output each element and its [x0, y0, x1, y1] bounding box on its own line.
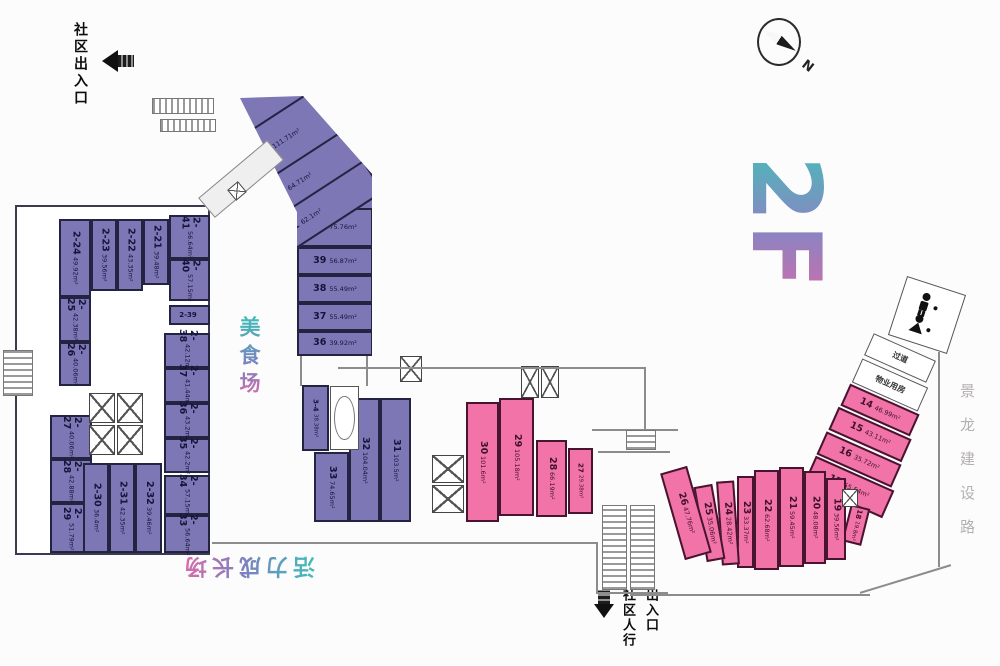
stairs [3, 350, 33, 396]
community-entrance-label: 社区出入口 [70, 22, 90, 107]
lift-lobby-room [330, 386, 359, 450]
elevator-box [432, 485, 464, 513]
unit-2-37: 2-3741.44m² [164, 368, 210, 403]
unit-23: 2333.37m² [737, 476, 754, 568]
restroom [888, 276, 966, 354]
corridor-line [596, 542, 598, 594]
unit-22: 2262.68m² [754, 470, 779, 570]
unit-2-40: 2-4057.15m² [169, 259, 210, 301]
unit-2-22: 2-2243.35m² [117, 219, 143, 291]
unit-21: 2159.45m² [779, 467, 804, 567]
unit-2-31: 2-3142.35m² [109, 463, 135, 553]
unit-37: 3755.49m² [297, 303, 373, 331]
unit-20: 2048.08m² [804, 471, 826, 564]
unit-2-38: 2-3842.12m² [164, 333, 210, 368]
walkway-bridge [198, 140, 284, 218]
elevator-box [432, 455, 464, 483]
unit-39: 3956.87m² [297, 247, 373, 275]
entrance-arrow-down-icon [594, 590, 614, 618]
unit-29: 29105.18m² [499, 398, 534, 516]
vitality-label: 活力成长场 [180, 552, 315, 584]
compass-icon: N [757, 18, 803, 68]
shaft-box [400, 356, 422, 382]
corridor-line [644, 367, 646, 431]
elevator-box [541, 366, 559, 398]
corridor-line [338, 367, 646, 369]
pedestrian-entrance-label: 社区人行 出入口 [594, 588, 660, 648]
unit-31: 31103.5m² [380, 398, 411, 522]
elevator-box [89, 393, 115, 423]
elevator-box [117, 425, 143, 455]
unit-30: 30101.6m² [466, 402, 499, 522]
unit-2-27: 2-2740.06m² [50, 415, 92, 459]
corridor-line [300, 356, 302, 386]
unit-2-30: 2-3036.4m² [83, 463, 109, 553]
escalator [152, 98, 214, 114]
unit-36: 3639.92m² [297, 331, 373, 356]
unit-2-36: 2-3643.2m² [164, 403, 210, 438]
entrance-arrow-left-icon [102, 50, 134, 72]
building-outline [860, 564, 951, 594]
unit-2-25: 2-2542.38m² [59, 297, 91, 342]
elevator-box [89, 425, 115, 455]
escalator [602, 505, 627, 590]
elevator-box [521, 366, 539, 398]
escalator [626, 430, 656, 450]
escalator [160, 119, 216, 132]
unit-33: 3374.65m² [314, 452, 349, 522]
unit-2-21: 2-2139.48m² [143, 219, 169, 285]
floor-label: 2F [710, 138, 860, 308]
unit-2-32: 2-3239.46m² [135, 463, 162, 553]
corridor-line [598, 451, 670, 453]
west-block: 2-2449.92m²2-2339.56m²2-2243.35m²2-2139.… [15, 205, 210, 555]
elevator-box [117, 393, 143, 423]
unit-38: 3855.49m² [297, 275, 373, 303]
restroom-icon [903, 289, 951, 342]
escalator [630, 505, 655, 590]
northeast-block: 4075.76m²3956.87m²3855.49m²3755.49m²3639… [200, 90, 385, 365]
unit-2-39: 2-39 [169, 305, 210, 325]
unit-2-35: 2-3542.2m² [164, 438, 210, 473]
corridor-line [366, 356, 368, 386]
building-outline [938, 352, 940, 567]
unit-3-4: 3-438.38m² [302, 385, 329, 451]
unit-27: 2729.38m² [568, 448, 593, 514]
unit-2-23: 2-2339.56m² [91, 219, 117, 291]
compass-north-label: N [799, 57, 817, 76]
unit-2-33: 2-3356.64m² [164, 515, 210, 553]
floor-plan: 4075.76m²3956.87m²3855.49m²3755.49m²3639… [0, 0, 1000, 666]
unit-2-34: 2-3457.15m² [164, 475, 210, 515]
unit-28: 2866.19m² [536, 440, 567, 517]
corridor-line [212, 542, 598, 544]
unit-2-26: 2-2640.06m² [59, 342, 91, 386]
unit-2-41: 2-4156.64m² [169, 215, 210, 259]
building-outline [630, 594, 870, 596]
unit-2-24: 2-2449.92m² [59, 219, 91, 297]
road-label: 景龙建设路 [957, 383, 978, 553]
food-court-label: 美食场 [234, 316, 264, 400]
elevator-box [842, 489, 858, 507]
